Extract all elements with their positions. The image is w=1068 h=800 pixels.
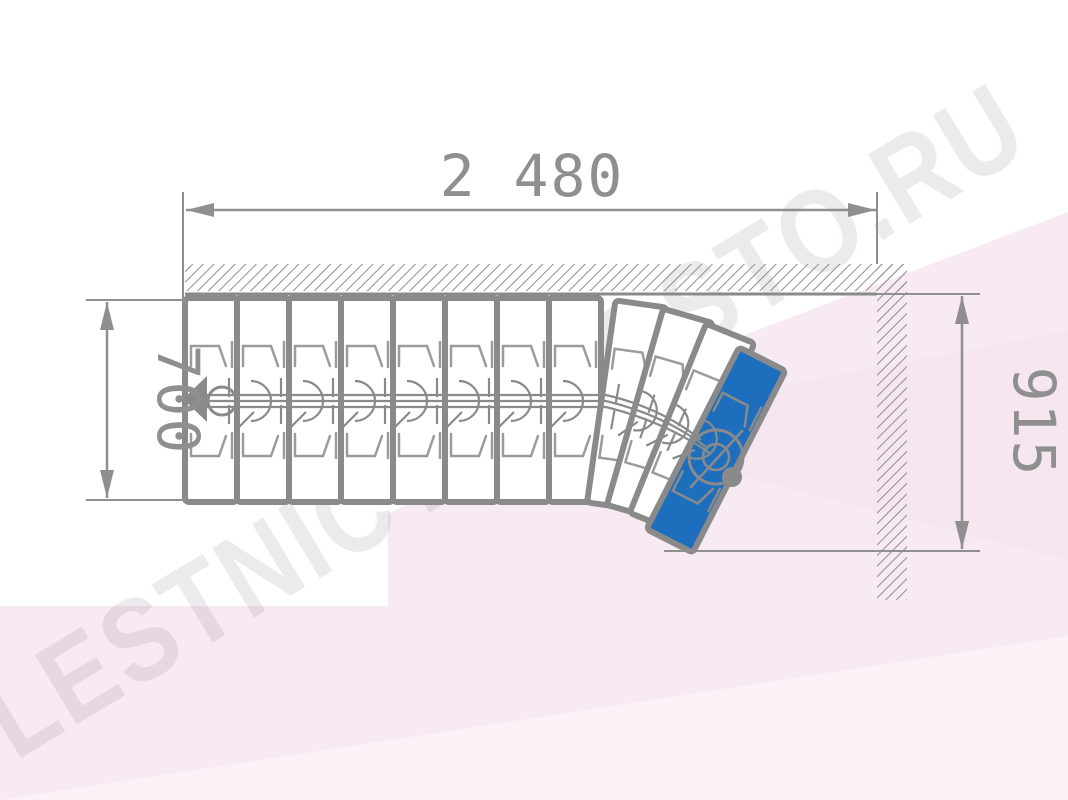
right-wall-hatch <box>877 264 907 600</box>
top-wall-hatch <box>185 264 907 291</box>
stair-drawing-page: LESTNICY-PROSTO.RU <box>0 0 1068 800</box>
stair-plan-canvas: LESTNICY-PROSTO.RU <box>0 0 1068 800</box>
dim-left-arrow-up <box>100 302 114 330</box>
dim-left-value: 700 <box>144 345 212 456</box>
pivot-dot <box>722 467 742 487</box>
dim-top-arrow-left <box>186 203 214 217</box>
dim-right-value: 915 <box>1000 367 1068 478</box>
dim-left-arrow-down <box>100 470 114 498</box>
dim-top-value: 2 480 <box>440 142 625 210</box>
